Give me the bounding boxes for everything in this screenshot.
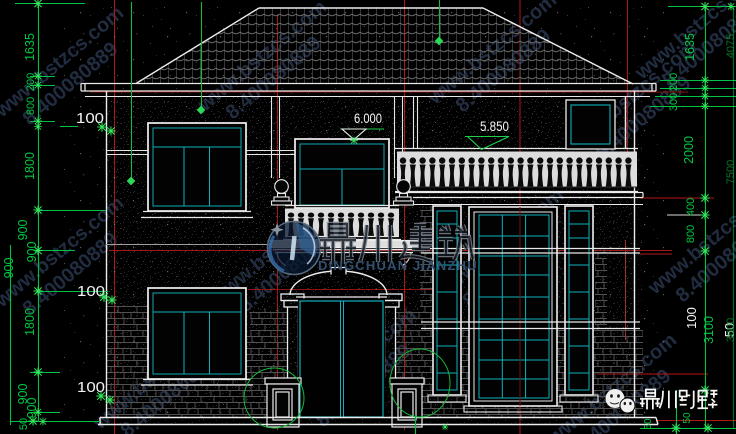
svg-text:3100: 3100: [702, 316, 716, 344]
svg-text:2000: 2000: [682, 136, 696, 164]
svg-text:1800: 1800: [23, 308, 37, 336]
svg-text:900: 900: [16, 220, 30, 241]
svg-text:900: 900: [25, 242, 39, 263]
svg-text:7500: 7500: [725, 160, 736, 184]
svg-text:800: 800: [685, 225, 697, 243]
svg-text:900: 900: [2, 258, 16, 279]
svg-text:800: 800: [25, 97, 37, 115]
svg-text:200: 200: [25, 73, 37, 91]
svg-text:100: 100: [684, 307, 699, 329]
svg-text:6.000: 6.000: [354, 110, 382, 126]
svg-text:300: 300: [668, 93, 680, 111]
svg-text:400: 400: [685, 198, 697, 216]
svg-text:1635: 1635: [23, 33, 37, 61]
svg-text:3600: 3600: [725, 318, 736, 342]
svg-text:5.850: 5.850: [480, 118, 509, 134]
svg-text:DINGCHUAN JIANZHU: DINGCHUAN JIANZHU: [318, 258, 478, 273]
svg-text:50: 50: [643, 418, 654, 430]
svg-text:1800: 1800: [23, 152, 37, 180]
svg-text:200: 200: [668, 73, 680, 91]
svg-text:1635: 1635: [683, 33, 697, 61]
svg-text:50: 50: [18, 418, 30, 430]
svg-text:900: 900: [25, 398, 39, 419]
svg-text:4075: 4075: [725, 34, 736, 58]
svg-text:50: 50: [682, 412, 693, 424]
